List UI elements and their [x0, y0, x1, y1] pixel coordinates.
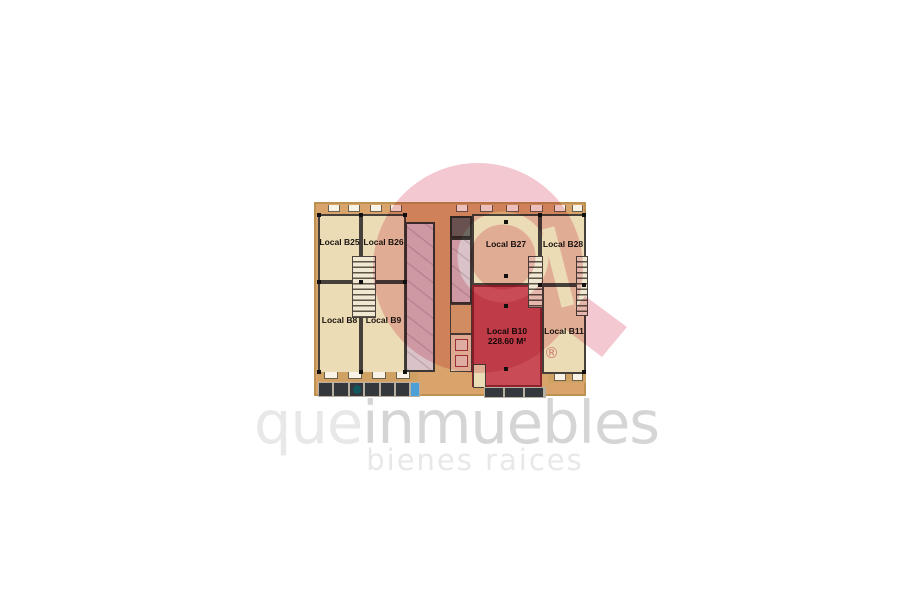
- ramp-corridor: [405, 222, 435, 372]
- wall-opening: [348, 205, 360, 212]
- column-marker: [403, 280, 407, 284]
- room-label: Local B27: [486, 240, 526, 250]
- column-marker: [317, 213, 321, 217]
- column-marker: [538, 213, 542, 217]
- room-label-with-area: Local B10 228.60 M²: [487, 327, 527, 347]
- stairwell: [450, 238, 472, 304]
- column-marker: [504, 274, 508, 278]
- wall-opening: [530, 205, 543, 212]
- column-marker: [359, 370, 363, 374]
- column-marker: [317, 280, 321, 284]
- column-marker: [359, 280, 363, 284]
- column-marker: [582, 283, 586, 287]
- column-marker: [359, 213, 363, 217]
- service-shaft: [450, 216, 472, 238]
- column-marker: [403, 213, 407, 217]
- column-marker: [504, 367, 508, 371]
- wall-opening: [328, 205, 340, 212]
- room-label: Local B26: [363, 238, 403, 248]
- room-label: Local B10: [487, 326, 527, 336]
- wall-opening: [554, 205, 566, 212]
- wall-opening: [480, 205, 493, 212]
- column-marker: [538, 283, 542, 287]
- room-label: Local B11: [544, 327, 584, 337]
- wall-opening: [372, 372, 386, 379]
- sanitary-fixtures: [528, 256, 543, 308]
- utility-room: [450, 304, 472, 334]
- room-label: Local B28: [543, 240, 583, 250]
- room-b10-notch: [473, 364, 486, 388]
- toilet-fixture: [455, 339, 468, 351]
- floor-plan: Local B25 Local B26 Local B8 Local B9 Lo…: [314, 202, 586, 396]
- column-marker: [317, 370, 321, 374]
- column-marker: [582, 213, 586, 217]
- wall-opening: [370, 205, 382, 212]
- brand-tagline: bienes raices: [290, 446, 660, 475]
- column-marker: [504, 304, 508, 308]
- column-marker: [504, 220, 508, 224]
- room-area: 228.60 M²: [488, 336, 526, 346]
- wall-opening: [324, 372, 338, 379]
- wall-opening: [506, 205, 519, 212]
- column-marker: [403, 370, 407, 374]
- toilet-fixture: [455, 355, 468, 367]
- wall-opening: [554, 374, 566, 381]
- wall-opening: [456, 205, 468, 212]
- sanitary-fixtures: [352, 256, 376, 318]
- room-label: Local B25: [319, 238, 359, 248]
- wall-opening: [572, 205, 583, 212]
- column-marker: [582, 370, 586, 374]
- wall-opening: [390, 205, 402, 212]
- restroom: [450, 334, 472, 372]
- wall-opening: [572, 374, 583, 381]
